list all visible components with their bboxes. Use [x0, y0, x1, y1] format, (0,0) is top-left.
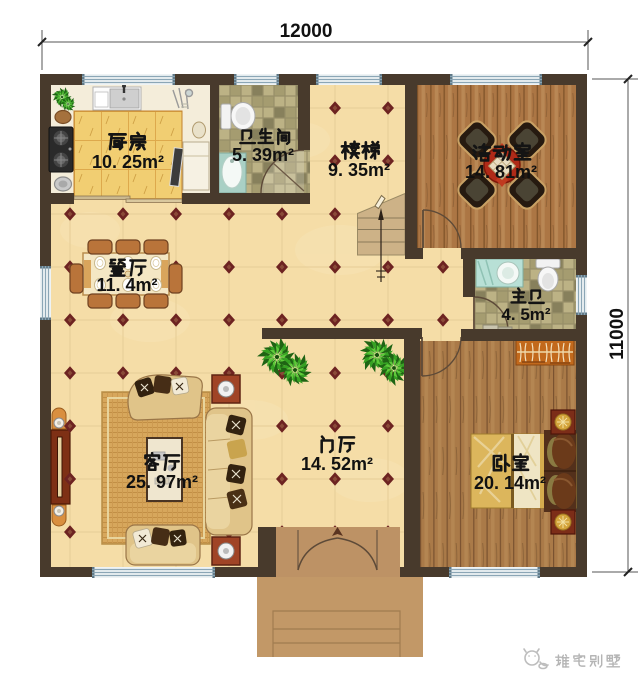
svg-text:11. 4m²: 11. 4m²: [96, 275, 157, 295]
svg-text:9. 35m²: 9. 35m²: [328, 160, 390, 180]
svg-text:14. 52m²: 14. 52m²: [301, 454, 373, 474]
svg-text:20. 14m²: 20. 14m²: [474, 473, 546, 493]
svg-text:14. 81m²: 14. 81m²: [465, 162, 537, 182]
svg-text:4. 5m²: 4. 5m²: [501, 305, 550, 324]
svg-text:12000: 12000: [280, 21, 333, 42]
svg-text:11000: 11000: [607, 308, 628, 360]
svg-text:10. 25m²: 10. 25m²: [92, 152, 164, 172]
svg-text:25. 97m²: 25. 97m²: [126, 472, 198, 492]
svg-text:5. 39m²: 5. 39m²: [232, 145, 294, 165]
